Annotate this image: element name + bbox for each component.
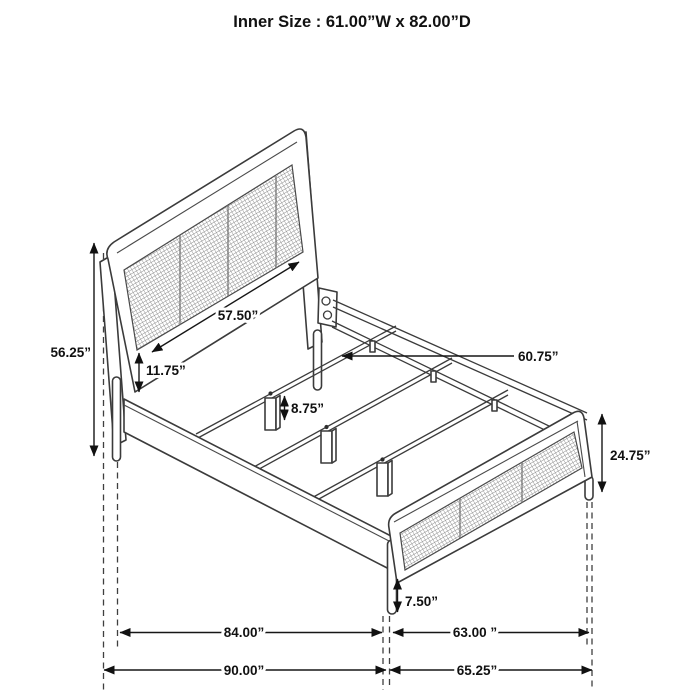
dim-slat-length-label: 60.75” (518, 349, 559, 364)
dim-headboard-height-label: 56.25” (50, 345, 91, 360)
dim-headboard-width-label: 57.50” (218, 308, 259, 323)
near-side-rail-edge (124, 405, 391, 542)
dim-overall-length-label: 90.00” (224, 663, 265, 678)
dim-overall-width-label: 65.25” (457, 663, 498, 678)
dim-footboard-span-label: 63.00 ” (453, 625, 497, 640)
bracket-hole (322, 297, 330, 305)
page-title: Inner Size : 61.00”W x 82.00”D (233, 13, 471, 31)
bed-dimension-diagram: 56.25” 57.50” 11.75” 60.75” 8.75” 24.75”… (0, 0, 700, 700)
headboard-right-leg (314, 330, 322, 390)
rail-clip (370, 341, 375, 352)
dim-footboard-height-label: 24.75” (610, 448, 651, 463)
rail-clip (431, 371, 436, 382)
bed-diagram-svg: 56.25” 57.50” 11.75” 60.75” 8.75” 24.75”… (0, 0, 700, 700)
bracket-hole (324, 311, 332, 319)
footboard (388, 411, 594, 614)
dim-footboard-leg-label: 7.50” (405, 594, 438, 609)
near-side-rail (124, 399, 391, 570)
dim-rail-gap-label: 11.75” (146, 363, 186, 378)
dim-center-leg-label: 8.75” (291, 401, 324, 416)
headboard-front-leg (113, 377, 121, 461)
rail-clip (492, 400, 497, 411)
dim-frame-length-label: 84.00” (224, 625, 265, 640)
